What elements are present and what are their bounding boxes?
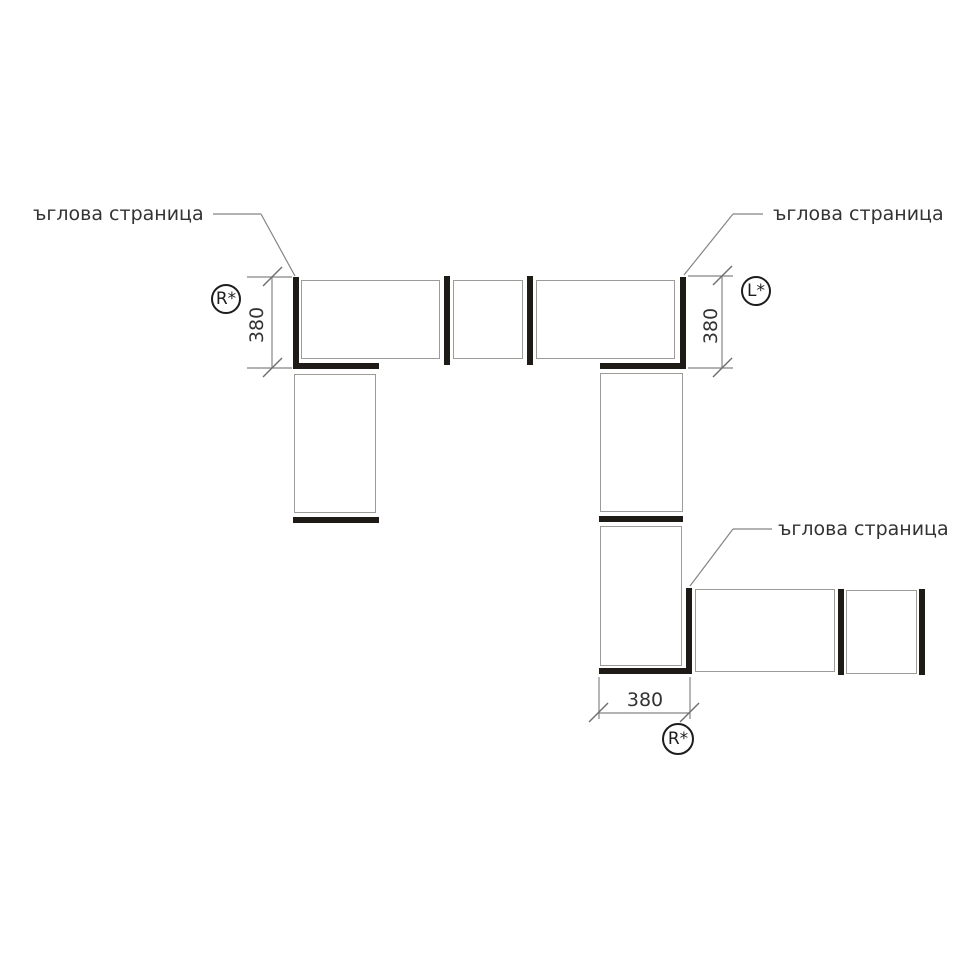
dimension-value-bottom-380: 380	[605, 688, 685, 712]
leader-line-bottom-diagonal	[690, 529, 733, 586]
cabinet-box-right-column-lower	[600, 526, 682, 666]
cabinet-box-left-column	[294, 374, 376, 513]
side-panel-bar	[599, 516, 683, 522]
side-panel-bar	[838, 589, 844, 675]
panel-assembly-drawing: ъглова страница ъглова страница ъглова с…	[0, 0, 970, 970]
side-marker-bottom-R: R*	[662, 723, 694, 755]
corner-panel-bar-top-right-horizontal	[600, 363, 686, 369]
dimension-value-right-380: 380	[699, 286, 723, 366]
side-marker-top-right-L: L*	[741, 276, 771, 306]
corner-panel-label-bottom: ъглова страница	[778, 519, 949, 540]
side-panel-bar	[444, 276, 450, 365]
cabinet-box-bottom-2	[846, 590, 917, 674]
cabinet-box-top-1	[301, 280, 440, 359]
leader-line-top-left-diagonal	[261, 214, 295, 276]
side-marker-top-left-R: R*	[211, 284, 241, 314]
dimension-value-left-380: 380	[245, 285, 269, 365]
side-panel-bar	[919, 589, 925, 675]
drafting-lines	[0, 0, 970, 970]
corner-panel-bar-top-left-horizontal	[293, 363, 379, 369]
corner-panel-bar-top-right-vertical	[680, 277, 686, 369]
corner-panel-label-top-left: ъглова страница	[33, 204, 204, 225]
side-panel-bar	[527, 276, 533, 365]
cabinet-box-top-2	[453, 280, 523, 359]
cabinet-box-right-column-upper	[600, 373, 683, 512]
corner-panel-bar-bottom-vertical	[686, 588, 692, 674]
leader-line-top-right-diagonal	[684, 214, 733, 275]
side-panel-bar	[293, 517, 379, 523]
corner-panel-bar-bottom-horizontal	[599, 668, 692, 674]
corner-panel-bar-top-left-vertical	[293, 277, 299, 369]
cabinet-box-top-3	[536, 280, 675, 359]
cabinet-box-bottom-1	[695, 589, 835, 672]
corner-panel-label-top-right: ъглова страница	[773, 204, 944, 225]
